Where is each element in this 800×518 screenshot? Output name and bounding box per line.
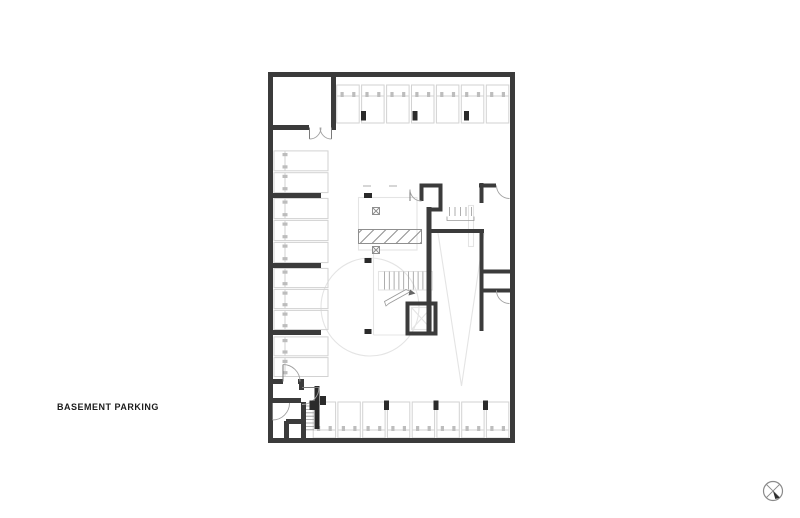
vehicle-ramp	[438, 233, 484, 386]
ramp-hatch	[348, 230, 434, 244]
plan-title: BASEMENT PARKING	[57, 402, 159, 412]
floor-plan-drawing	[0, 0, 800, 518]
bike-rack-ticks	[447, 207, 474, 221]
inner-walls	[268, 74, 510, 441]
drawing-sheet: BASEMENT PARKING	[0, 0, 800, 518]
stair-core	[379, 272, 433, 307]
floor-drain-icon	[373, 208, 380, 215]
bottom-parking-stalls	[313, 402, 509, 438]
turning-circle	[321, 258, 419, 356]
structural-columns	[310, 111, 489, 410]
north-marker-icon	[758, 476, 788, 506]
